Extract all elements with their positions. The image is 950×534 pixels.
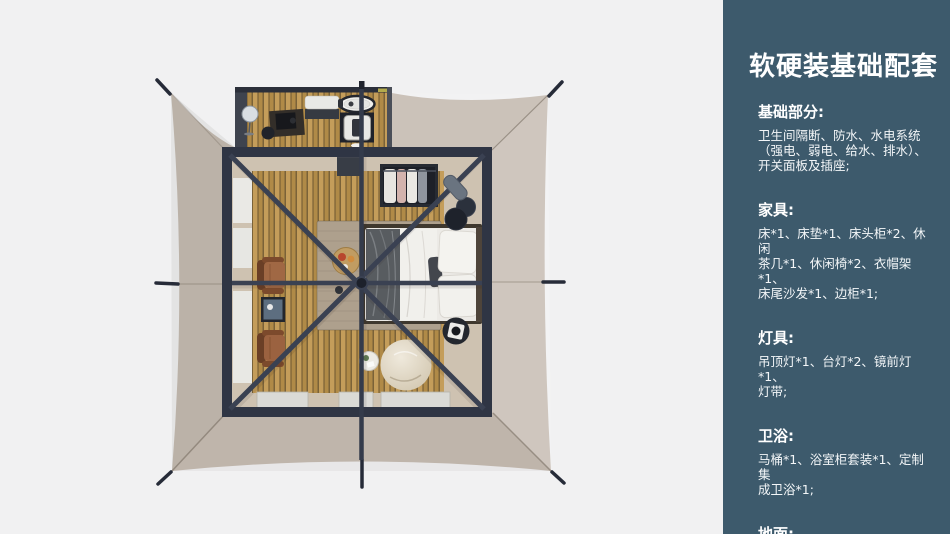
spec-section-lighting: 灯具: 吊顶灯*1、台灯*2、镜前灯*1、 灯带;	[758, 327, 932, 399]
section-body: 吊顶灯*1、台灯*2、镜前灯*1、 灯带;	[758, 354, 932, 399]
spec-section-basics: 基础部分: 卫生间隔断、防水、水电系统 （强电、弱电、给水、排水）、 开关面板及…	[758, 101, 932, 173]
bathroom-sink	[338, 96, 375, 112]
vanity-chair	[262, 127, 275, 140]
panel-title: 软硬装基础配套	[749, 46, 932, 83]
spec-section-flooring: 地面: 强化木地板、卫生间防滑防潮石 塑板;	[758, 523, 932, 534]
section-heading: 地面:	[758, 523, 932, 534]
center-hub	[356, 277, 368, 289]
section-heading: 灯具:	[758, 327, 932, 348]
pillow-2	[438, 274, 478, 318]
bathroom-unit	[235, 87, 392, 148]
info-panel: 软硬装基础配套 基础部分: 卫生间隔断、防水、水电系统 （强电、弱电、给水、排水…	[723, 0, 950, 534]
presentation-slide: 软硬装基础配套 基础部分: 卫生间隔断、防水、水电系统 （强电、弱电、给水、排水…	[0, 0, 950, 534]
stake-top-right	[549, 82, 562, 96]
shower-tray	[340, 113, 374, 143]
section-body: 卫生间隔断、防水、水电系统 （强电、弱电、给水、排水）、 开关面板及插座;	[758, 128, 932, 173]
stake-bottom-right	[552, 472, 564, 483]
wardrobe-rack	[380, 164, 438, 207]
stake-bottom-left	[158, 472, 171, 484]
stake-top-left	[157, 80, 170, 94]
pillow-1	[438, 230, 478, 274]
round-side-table	[443, 318, 470, 345]
ridge-pole-cap	[359, 81, 365, 89]
headboard	[476, 227, 483, 322]
spec-section-bathroom: 卫浴: 马桶*1、浴室柜套装*1、定制集 成卫浴*1;	[758, 425, 932, 497]
section-heading: 家具:	[758, 199, 932, 220]
section-heading: 基础部分:	[758, 101, 932, 122]
section-body: 床*1、床垫*1、床头柜*2、休闲 茶几*1、休闲椅*2、衣帽架*1、 床尾沙发…	[758, 226, 932, 301]
bathroom-right-wall	[387, 87, 392, 148]
bathroom-counter	[305, 96, 339, 109]
stake-left-mid	[156, 283, 178, 284]
side-cabinet	[337, 155, 362, 176]
section-body: 马桶*1、浴室柜套装*1、定制集 成卫浴*1;	[758, 452, 932, 497]
chair-side-table	[261, 297, 285, 322]
spec-section-furniture: 家具: 床*1、床垫*1、床头柜*2、休闲 茶几*1、休闲椅*2、衣帽架*1、 …	[758, 199, 932, 301]
bathroom-top-wall	[235, 87, 392, 93]
tent-floorplan-render	[0, 0, 723, 534]
section-heading: 卫浴:	[758, 425, 932, 446]
floorplan-svg	[0, 0, 723, 534]
